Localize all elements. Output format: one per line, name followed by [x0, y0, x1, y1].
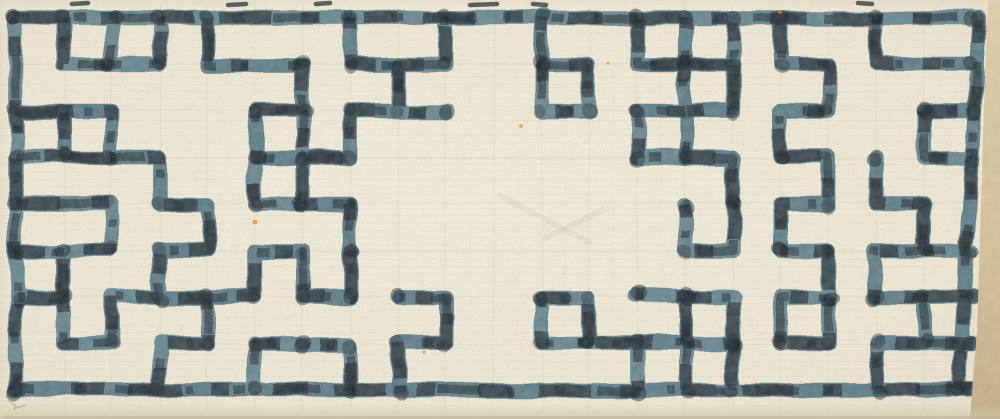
scanned-lattice-drawing [0, 0, 1000, 419]
paper-speck [519, 124, 523, 128]
paper-speck [422, 350, 425, 353]
top-edge-ink-mark [228, 4, 246, 5]
top-edge-ink-mark [72, 3, 88, 4]
paper-speck [778, 10, 782, 14]
paper-speck [253, 220, 258, 225]
top-edge-ink-mark [533, 4, 546, 5]
top-edge-ink-mark [470, 4, 497, 5]
paper-edge-left-shade [0, 0, 7, 419]
top-edge-ink-mark [316, 3, 330, 4]
lattice-artwork-canvas [0, 0, 1000, 419]
top-edge-ink-mark [858, 3, 872, 4]
paper-speck [607, 62, 610, 65]
paper-grain-over [0, 0, 1000, 419]
paper-edge-top-shade [0, 0, 1000, 6]
